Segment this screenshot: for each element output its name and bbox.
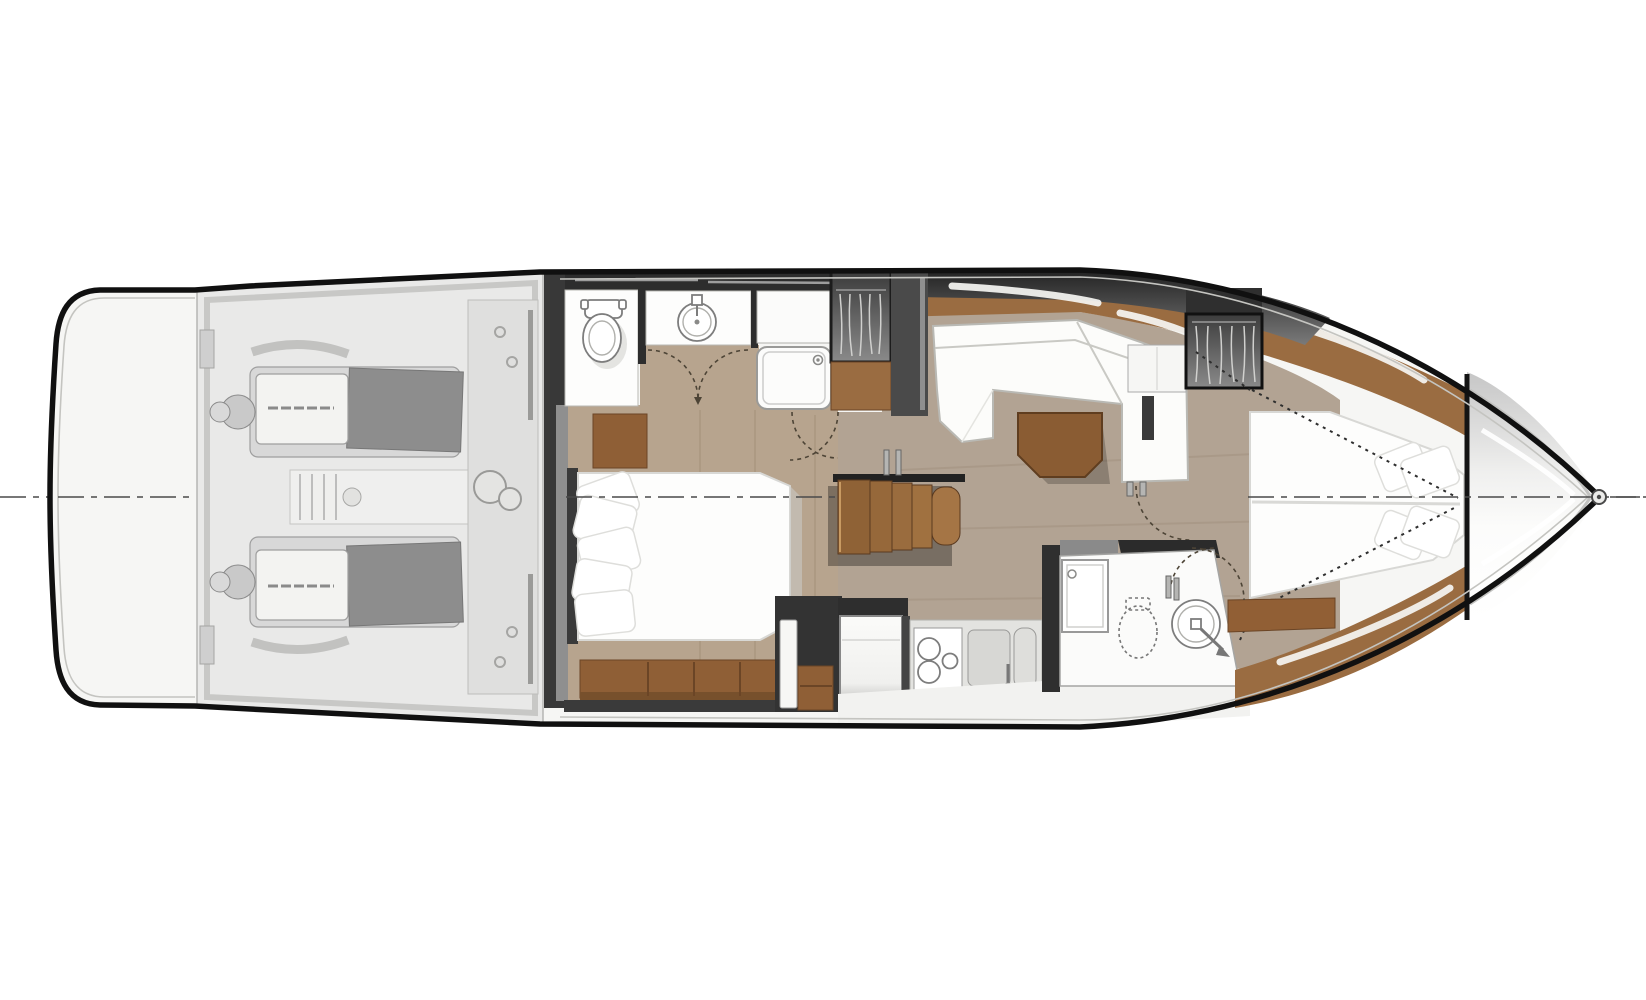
engine-room (197, 273, 543, 723)
wardrobe-aft (831, 272, 891, 410)
nightstand (593, 414, 647, 468)
anchor-fitting-icon (1592, 490, 1606, 504)
coffee-table (1018, 413, 1102, 477)
double-sink-icon (968, 628, 1036, 688)
wardrobe-forward (1186, 288, 1262, 388)
head-shower-icon (1062, 560, 1108, 632)
shower-icon (757, 347, 831, 409)
engine-block (347, 368, 464, 452)
refrigerator (840, 616, 902, 700)
yacht-floor-plan (0, 0, 1646, 1000)
bed-pillows (571, 470, 642, 637)
equipment-panel (468, 300, 538, 694)
mattress-seam (1252, 502, 1460, 504)
foot-bench (580, 660, 802, 706)
keel-channel (290, 470, 472, 524)
galley-step (798, 666, 833, 710)
bath-cabinet (757, 291, 830, 343)
cooktop-icon (914, 628, 962, 690)
guest-head (1042, 540, 1240, 692)
locker-door (780, 620, 797, 708)
fwd-bench (1228, 598, 1335, 632)
fwd-door-wall (1142, 396, 1154, 440)
deck-plan-canvas (0, 0, 1646, 1000)
